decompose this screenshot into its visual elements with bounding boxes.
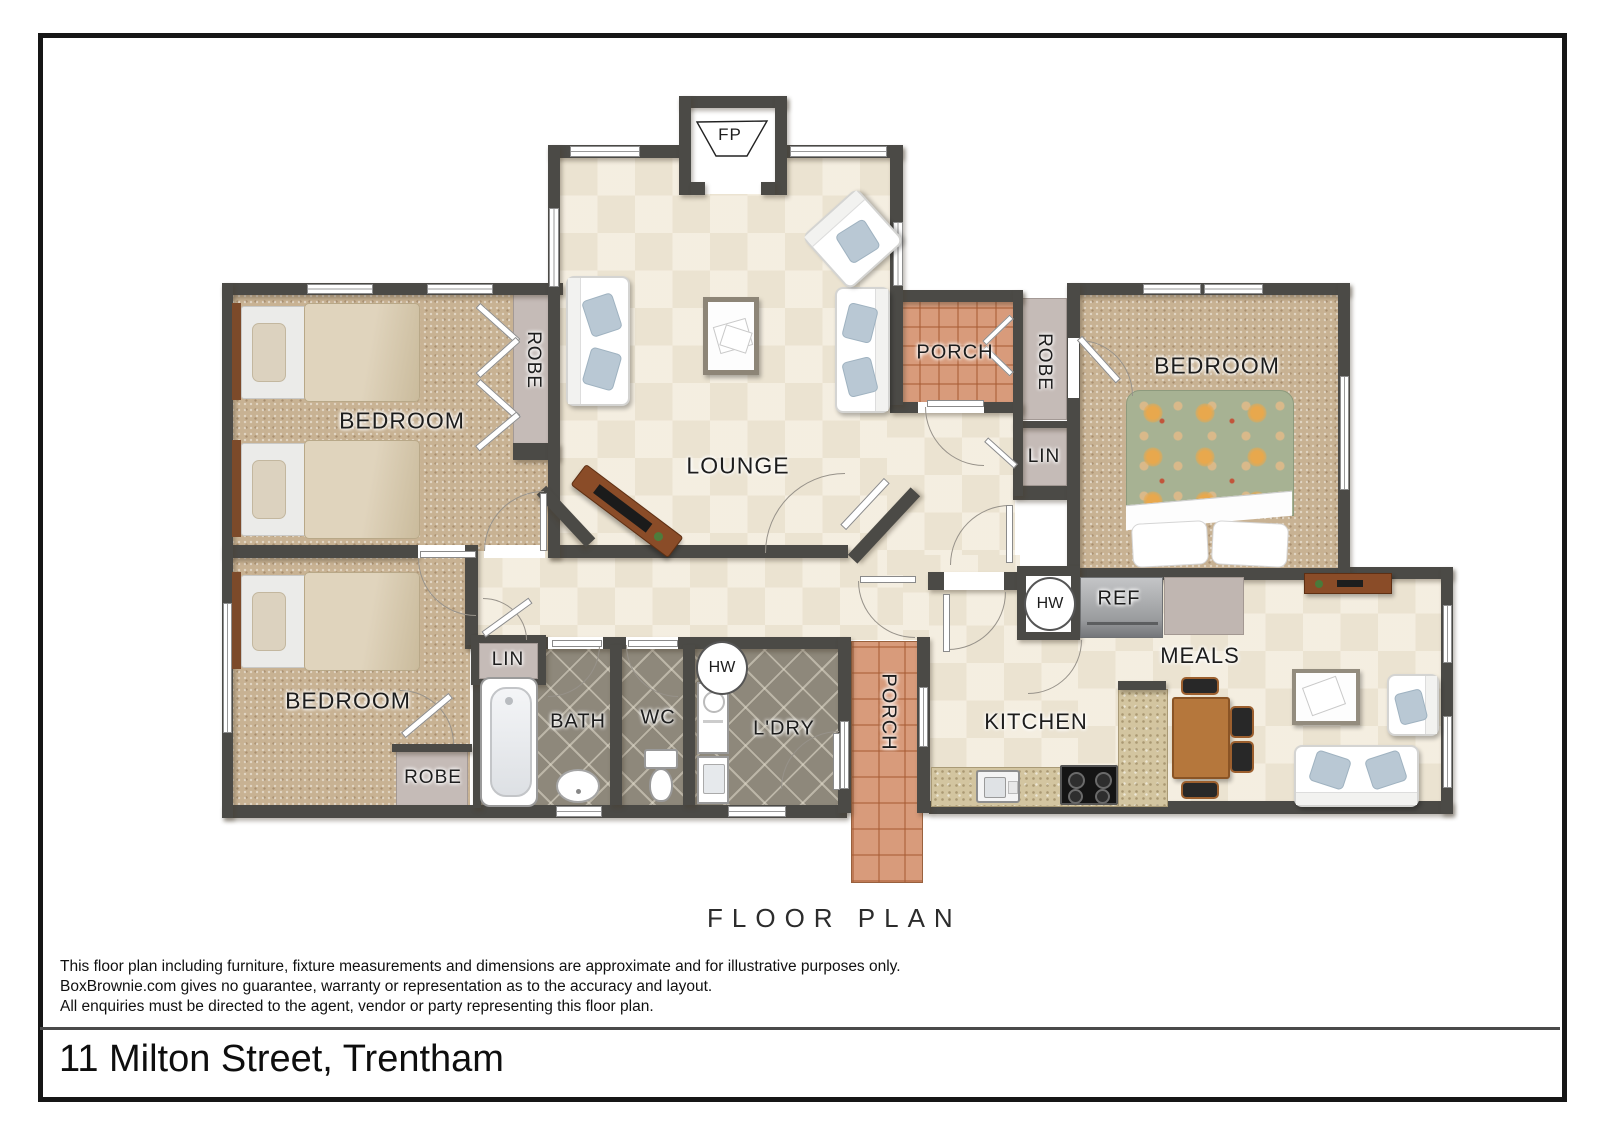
property-address: 11 Milton Street, Trentham	[59, 1038, 504, 1081]
address-band-divider	[40, 1027, 1560, 1030]
disclaimer-line-2: BoxBrownie.com gives no guarantee, warra…	[60, 978, 712, 996]
floor-plan-title: FLOOR PLAN	[707, 903, 962, 934]
page-border	[38, 33, 1567, 1102]
disclaimer-line-1: This floor plan including furniture, fix…	[60, 958, 901, 976]
floor-plan-page: HW HW BEDROOM BEDROOM BEDROOM LOUNGE MEA…	[0, 0, 1600, 1131]
disclaimer-line-3: All enquiries must be directed to the ag…	[60, 998, 654, 1016]
